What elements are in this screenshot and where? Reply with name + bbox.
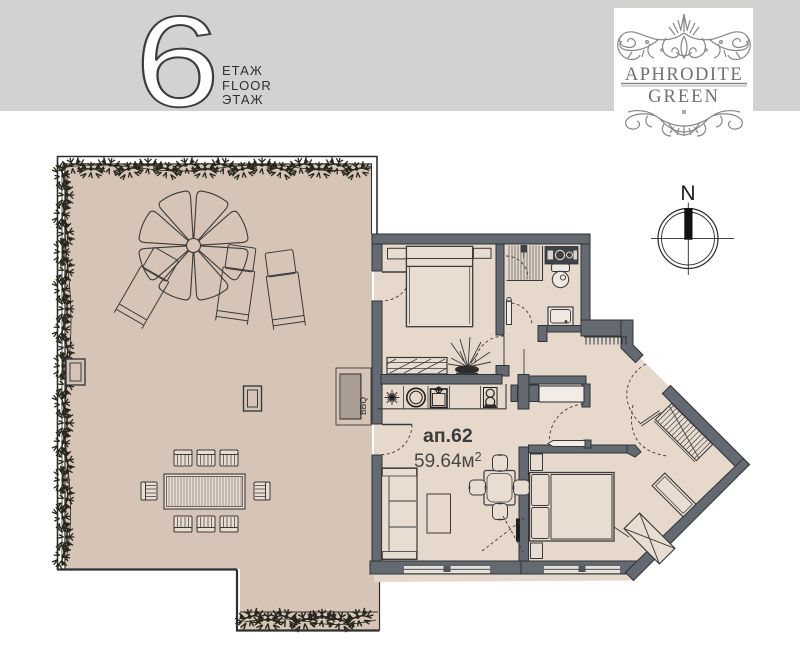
- svg-text:FLOOR: FLOOR: [222, 78, 272, 93]
- svg-text:59.64м2: 59.64м2: [414, 450, 482, 472]
- svg-text:6: 6: [135, 0, 220, 133]
- svg-text:ЕТАЖ: ЕТАЖ: [222, 63, 263, 78]
- svg-text:BBQ: BBQ: [358, 397, 368, 415]
- svg-text:N: N: [680, 182, 695, 205]
- svg-text:GREEN: GREEN: [648, 87, 720, 107]
- svg-text:ап.62: ап.62: [423, 425, 473, 447]
- svg-text:APHRODITE: APHRODITE: [625, 65, 743, 85]
- svg-text:ЭТАЖ: ЭТАЖ: [222, 92, 264, 107]
